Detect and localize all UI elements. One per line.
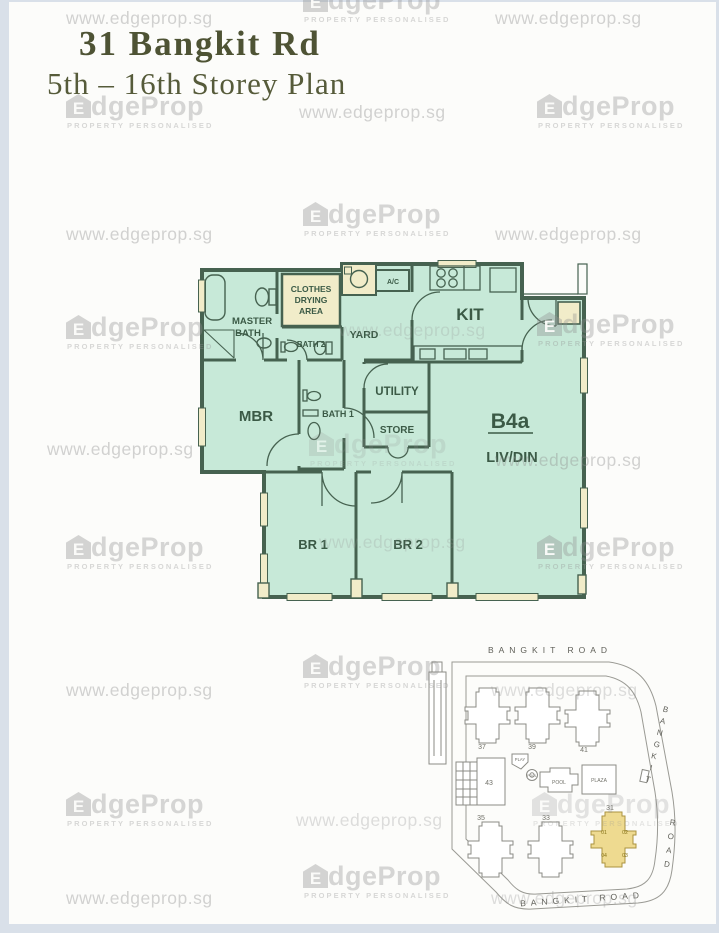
watermark-url: www.edgeprop.sg <box>66 224 213 245</box>
exterior-ledge <box>522 264 587 294</box>
block-41 <box>565 691 610 746</box>
washing-machine-icon <box>342 264 376 295</box>
block-label-41: 41 <box>580 747 588 754</box>
edgeprop-house-icon: E <box>303 0 328 12</box>
block-31-highlighted <box>591 812 636 867</box>
watermark-url: www.edgeprop.sg <box>66 888 213 909</box>
room-label-utility: UTILITY <box>375 386 419 398</box>
room-label-livdin: LIV/DIN <box>486 450 538 466</box>
room-label-bath2: BATH 2 <box>297 340 326 349</box>
room-label-clothes-2: DRYING <box>295 295 328 305</box>
room-label-master-bath-2: BATH <box>235 328 261 339</box>
edgeprop-house-icon: E <box>303 202 328 226</box>
block-label-33: 33 <box>542 815 550 822</box>
site-plan: 37 39 41 43 35 33 31 PLAY POOL POOL PLAZ… <box>424 642 719 932</box>
watermark-url: www.edgeprop.sg <box>47 439 194 460</box>
page-subtitle: 5th – 16th Storey Plan <box>47 66 346 102</box>
site-plan-map: 37 39 41 43 35 33 31 PLAY POOL POOL PLAZ… <box>424 642 719 932</box>
document-page: 31 Bangkit Rd 5th – 16th Storey Plan <box>9 2 716 924</box>
block-label-43: 43 <box>485 780 493 787</box>
page-title: 31 Bangkit Rd <box>79 24 321 64</box>
block-label-37: 37 <box>478 744 486 751</box>
edgeprop-logo: E dgeProp PROPERTY PERSONALISED <box>303 202 443 248</box>
block-35 <box>468 822 513 877</box>
unit-label-02: 02 <box>622 830 628 836</box>
room-label-yard: YARD <box>350 329 379 341</box>
room-label-clothes-3: AREA <box>299 306 323 316</box>
edgeprop-house-icon: E <box>303 864 328 888</box>
edgeprop-logo: E dgeProp PROPERTY PERSONALISED <box>303 0 443 34</box>
block-39 <box>515 688 560 743</box>
entrance-cabinet <box>558 302 580 324</box>
unit-type-label: B4a <box>491 410 530 433</box>
facility-label-play: PLAY <box>515 757 526 762</box>
edgeprop-house-icon: E <box>537 94 562 118</box>
edgeprop-house-icon: E <box>303 654 328 678</box>
facility-label-small-pool: POOL <box>527 774 537 778</box>
edgeprop-house-icon: E <box>66 792 91 816</box>
room-label-kitchen: KIT <box>456 305 484 324</box>
room-label-mbr: MBR <box>239 408 273 425</box>
room-label-ac: A/C <box>387 279 399 286</box>
edgeprop-house-icon: E <box>66 315 91 339</box>
facility-label-plaza: PLAZA <box>591 778 608 784</box>
watermark-url: www.edgeprop.sg <box>299 102 446 123</box>
room-label-clothes-1: CLOTHES <box>291 284 332 294</box>
edgeprop-logo: E dgeProp PROPERTY PERSONALISED <box>303 654 443 700</box>
floor-plan: CLOTHES DRYING AREA A/C YARD KIT MASTER … <box>192 258 592 608</box>
block-label-31: 31 <box>606 805 614 812</box>
edgeprop-logo: E dgeProp PROPERTY PERSONALISED <box>303 864 443 910</box>
room-label-master-bath-1: MASTER <box>232 316 272 327</box>
room-label-bath1: BATH 1 <box>322 409 354 419</box>
block-37 <box>465 688 510 743</box>
watermark-url: www.edgeprop.sg <box>495 224 642 245</box>
facility-label-pool: POOL <box>552 780 566 786</box>
watermark-url: www.edgeprop.sg <box>66 680 213 701</box>
carpark <box>456 758 505 805</box>
block-33 <box>528 822 573 877</box>
unit-label-01: 01 <box>601 830 607 836</box>
room-label-br2: BR 2 <box>393 537 423 552</box>
edgeprop-logo: E dgeProp PROPERTY PERSONALISED <box>66 535 206 581</box>
room-label-store: STORE <box>380 425 415 436</box>
edgeprop-logo: E dgeProp PROPERTY PERSONALISED <box>537 94 677 140</box>
watermark-url: www.edgeprop.sg <box>296 810 443 831</box>
slab-block <box>429 662 446 764</box>
edgeprop-logo: E dgeProp PROPERTY PERSONALISED <box>66 315 206 361</box>
block-label-39: 39 <box>528 744 536 751</box>
unit-label-03: 03 <box>622 853 628 859</box>
road-label-top: BANGKIT ROAD <box>482 645 618 655</box>
watermark-url: www.edgeprop.sg <box>495 8 642 29</box>
edgeprop-logo: E dgeProp PROPERTY PERSONALISED <box>66 792 206 838</box>
room-label-br1: BR 1 <box>298 537 328 552</box>
unit-label-04: 04 <box>601 853 607 859</box>
block-label-35: 35 <box>477 815 485 822</box>
edgeprop-house-icon: E <box>66 535 91 559</box>
